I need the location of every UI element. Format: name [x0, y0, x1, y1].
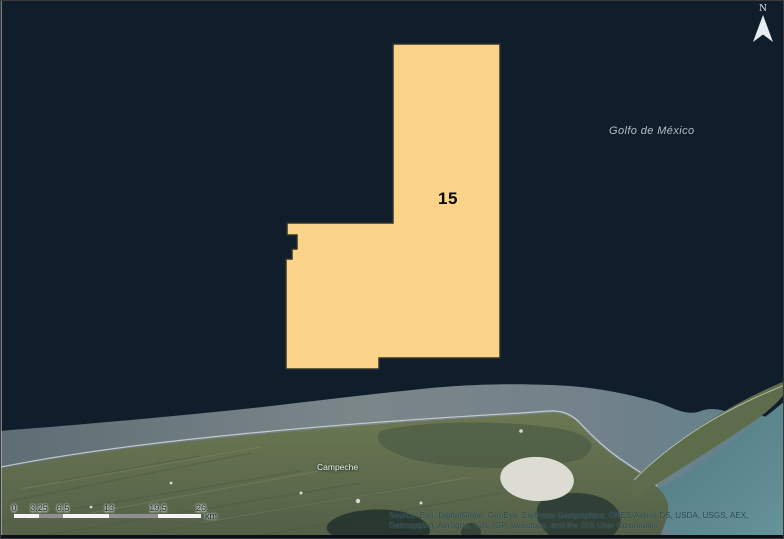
north-arrow-icon	[752, 15, 774, 43]
scale-segment	[63, 514, 109, 518]
attribution: Source: Esri, DigitalGlobe, GeoEye, Eart…	[389, 511, 781, 530]
north-arrow: N	[745, 4, 781, 48]
scale-bar: 0 3.25 6.5 13 19.5 26 km	[14, 503, 224, 525]
scale-segment	[14, 514, 39, 518]
scale-tick: 13	[104, 503, 114, 513]
north-arrow-n-label: N	[745, 4, 781, 14]
scale-segment	[109, 514, 158, 518]
scale-tick: 6.5	[57, 503, 70, 513]
scale-segment	[158, 514, 201, 518]
basemap-svg	[1, 1, 784, 539]
scale-tick: 19.5	[149, 503, 167, 513]
gulf-of-mexico-label: Golfo de México	[609, 125, 694, 137]
scale-segment	[39, 514, 63, 518]
map-frame-left-edge	[1, 1, 2, 538]
scale-tick: 0	[11, 503, 16, 513]
attribution-line-2: Getmapping, Aerogrid, IGN, IGP, swisstop…	[389, 521, 781, 531]
scale-tick: 3.25	[30, 503, 48, 513]
attribution-line-1: Source: Esri, DigitalGlobe, GeoEye, Eart…	[389, 511, 781, 521]
map-canvas: Golfo de México Campeche 15 N 0 3.25 6.5…	[0, 0, 784, 539]
map-frame-bottom-edge	[1, 535, 783, 538]
campeche-label: Campeche	[317, 462, 358, 472]
scale-unit-label: km	[205, 511, 217, 521]
scale-bar-segments	[14, 514, 201, 518]
block-number-label: 15	[438, 189, 458, 209]
